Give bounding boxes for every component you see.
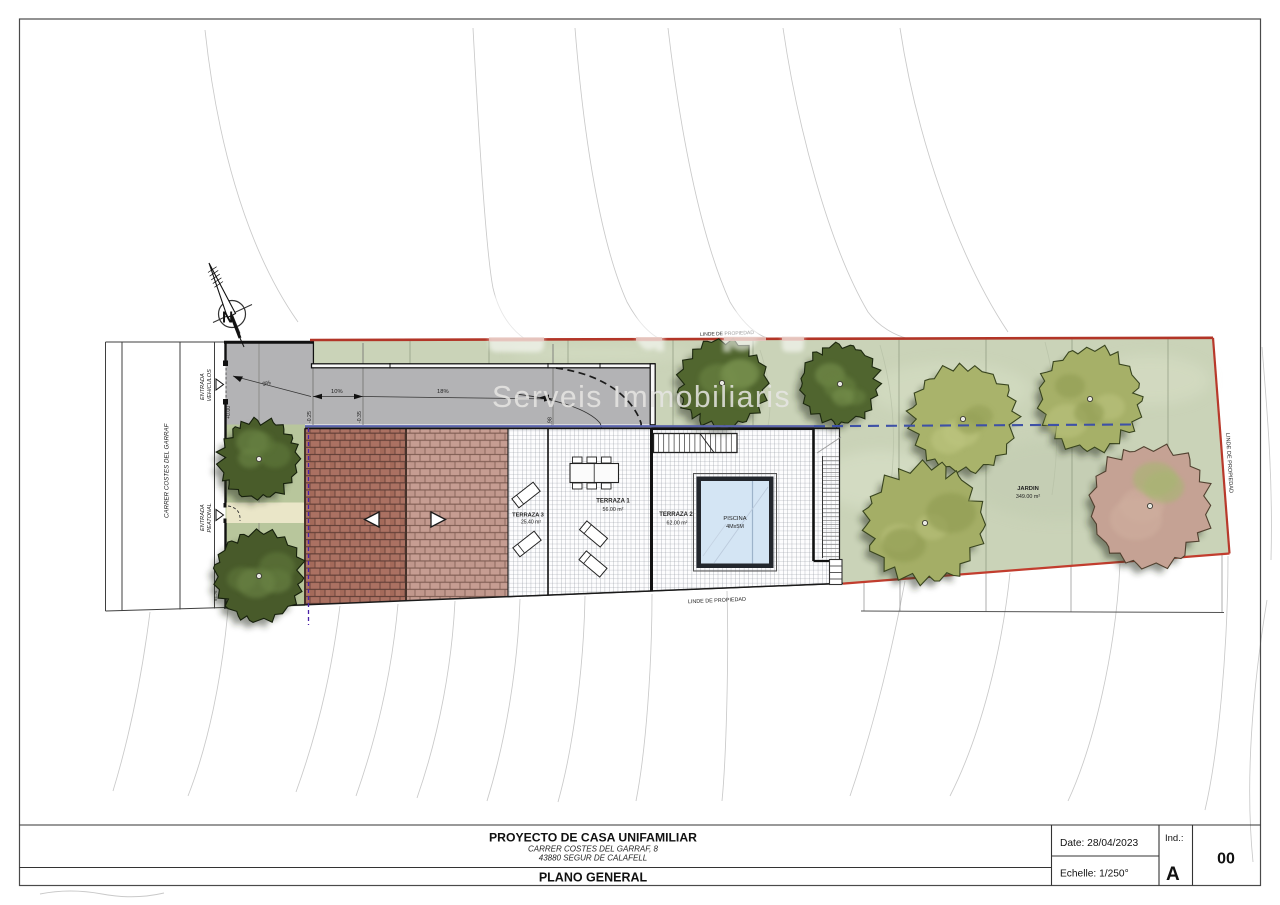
svg-text:+0.00: +0.00: [226, 406, 232, 419]
svg-text:00: 00: [1217, 851, 1235, 868]
svg-text:TERRAZA 3: TERRAZA 3: [512, 513, 544, 519]
svg-text:TERRAZA 2: TERRAZA 2: [659, 512, 693, 518]
svg-text:43880 SEGUR DE CALAFELL: 43880 SEGUR DE CALAFELL: [539, 854, 648, 863]
svg-text:Serveis Immobiliaris: Serveis Immobiliaris: [492, 381, 791, 414]
svg-text:349.00 m²: 349.00 m²: [1016, 494, 1040, 500]
svg-text:PISCINA: PISCINA: [723, 516, 746, 522]
svg-text:56.00 m²: 56.00 m²: [603, 507, 624, 513]
svg-text:PLANO GENERAL: PLANO GENERAL: [539, 871, 648, 885]
svg-text:JARDIN: JARDIN: [1017, 486, 1039, 492]
svg-text:TERRAZA 1: TERRAZA 1: [596, 499, 630, 505]
svg-text:N: N: [222, 310, 233, 327]
svg-text:-0.35: -0.35: [357, 411, 363, 423]
svg-text:-0.25: -0.25: [307, 411, 313, 423]
svg-text:18%: 18%: [437, 389, 449, 395]
svg-text:10%: 10%: [331, 389, 343, 395]
svg-text:Echelle: 1/250°: Echelle: 1/250°: [1060, 869, 1129, 880]
svg-text:25.40 m²: 25.40 m²: [521, 520, 541, 526]
svg-text:ENTRADA: ENTRADA: [200, 373, 206, 400]
svg-text:CARRER COSTES DEL GARRAF, 8: CARRER COSTES DEL GARRAF, 8: [528, 845, 659, 854]
svg-text:Date: 28/04/2023: Date: 28/04/2023: [1060, 838, 1139, 849]
svg-text:Ind.:: Ind.:: [1165, 833, 1184, 844]
svg-text:62.00 m²: 62.00 m²: [667, 521, 688, 527]
svg-text:4Mx5M: 4Mx5M: [726, 524, 744, 530]
svg-text:ENTRADA: ENTRADA: [200, 504, 206, 531]
svg-text:VEHICULOS: VEHICULOS: [207, 369, 213, 402]
svg-text:PEATONAL: PEATONAL: [207, 503, 213, 532]
svg-text:PROYECTO DE CASA UNIFAMILIAR: PROYECTO DE CASA UNIFAMILIAR: [489, 831, 697, 845]
svg-text:CARRER COSTES DEL GARRAF: CARRER COSTES DEL GARRAF: [164, 422, 171, 518]
svg-text:A: A: [1166, 864, 1180, 885]
